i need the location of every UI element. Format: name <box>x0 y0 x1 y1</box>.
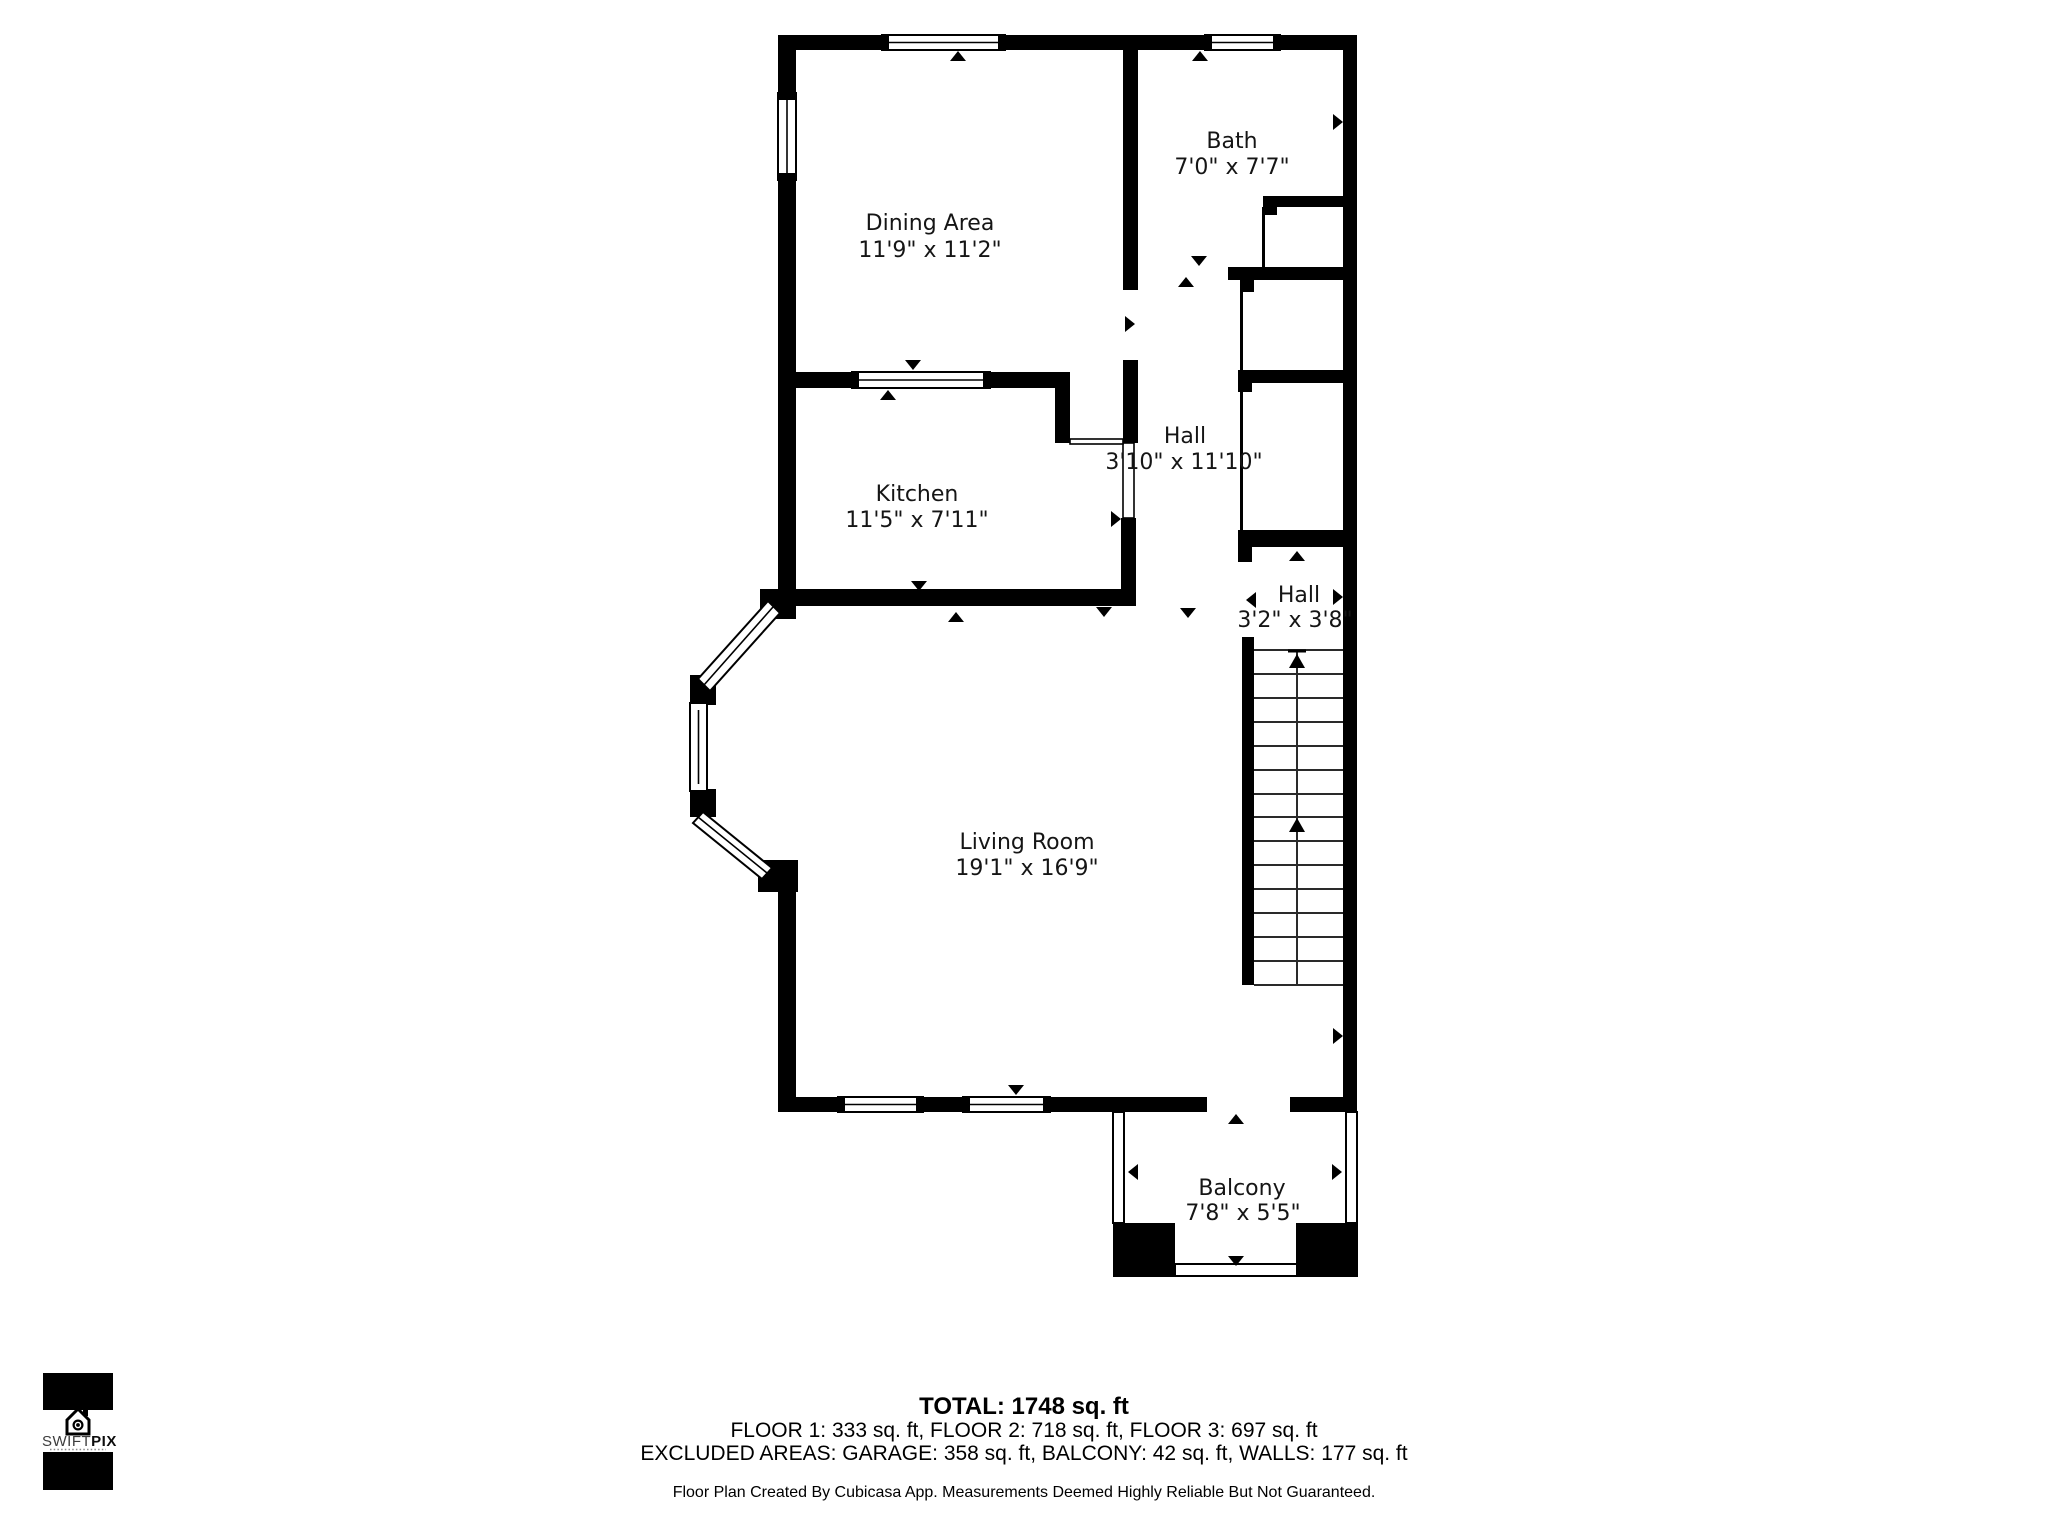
balcony-post-left <box>1113 1223 1175 1277</box>
room-label-kitchen-name: Kitchen <box>876 482 959 507</box>
pantry-front <box>1070 439 1123 444</box>
closet-front-2 <box>1240 280 1243 370</box>
arrow-right-icon <box>1333 1028 1343 1044</box>
area-summary: TOTAL: 1748 sq. ft FLOOR 1: 333 sq. ft, … <box>640 1393 1407 1501</box>
room-label-hall1-dims: 3'10" x 11'10" <box>1105 450 1262 475</box>
arrow-right-icon <box>1125 316 1135 332</box>
window-living-bottom-1 <box>838 1097 923 1112</box>
arrow-up-icon <box>950 51 966 61</box>
floor-plan-canvas: Dining Area 11'9" x 11'2" Bath 7'0" x 7'… <box>0 0 2048 1536</box>
arrow-left-icon <box>1246 592 1256 608</box>
room-label-dining-dims: 11'9" x 11'2" <box>858 238 1001 263</box>
stair-up-arrow-2 <box>1289 818 1305 832</box>
room-label-bath-name: Bath <box>1206 129 1257 154</box>
wall-right <box>1343 35 1357 1112</box>
summary-disclaimer: Floor Plan Created By Cubicasa App. Meas… <box>673 1484 1376 1501</box>
arrow-up-icon <box>1178 277 1194 287</box>
wall-stub-1 <box>1263 196 1277 215</box>
wall-central-mid <box>1123 360 1138 443</box>
room-label-balcony-name: Balcony <box>1198 1176 1285 1201</box>
window-living-bottom-2 <box>963 1097 1050 1112</box>
bay-window-lower-diagonal <box>693 812 772 879</box>
logo-block-bottom <box>43 1452 113 1490</box>
arrow-down-icon <box>1096 607 1112 617</box>
wall-pantry-left <box>1055 385 1070 443</box>
stairs-left-wall <box>1242 637 1254 985</box>
arrow-right-icon <box>1332 1164 1342 1180</box>
room-label-dining-name: Dining Area <box>866 211 995 236</box>
wall-central-upper <box>1123 35 1138 290</box>
wall-bottom-3 <box>1050 1097 1207 1112</box>
logo-block-top <box>43 1373 113 1410</box>
logo-house-camera-icon <box>67 1409 89 1434</box>
arrow-down-icon <box>905 360 921 370</box>
window-dining-top <box>882 35 1005 50</box>
arrow-right-icon <box>1333 114 1343 130</box>
arrow-down-icon <box>1191 256 1207 266</box>
arrow-right-icon <box>1333 589 1343 605</box>
arrow-down-icon <box>1008 1085 1024 1095</box>
arrow-up-icon <box>1289 551 1305 561</box>
wall-kitchen-left <box>778 385 796 604</box>
room-label-living-dims: 19'1" x 16'9" <box>955 856 1098 881</box>
window-bath-top <box>1205 35 1280 50</box>
wall-closet-2 <box>1228 267 1343 280</box>
room-label-hall2-dims: 3'2" x 3'8" <box>1237 608 1352 633</box>
closet-front-1 <box>1262 207 1265 268</box>
arrow-left-icon <box>1128 1164 1138 1180</box>
wall-stub-4 <box>1238 530 1252 562</box>
wall-bottom-2 <box>923 1097 963 1112</box>
arrow-down-icon <box>1180 608 1196 618</box>
arrow-right-icon <box>1111 511 1121 527</box>
logo-text-pix: PIX <box>91 1433 117 1450</box>
wall-closet-3 <box>1238 370 1343 383</box>
balcony-rail-left <box>1113 1112 1124 1223</box>
summary-total: TOTAL: 1748 sq. ft <box>919 1393 1129 1420</box>
room-label-kitchen-dims: 11'5" x 7'11" <box>845 508 988 533</box>
logo-text-swift: SWIFT <box>42 1433 91 1450</box>
arrow-up-icon <box>880 390 896 400</box>
room-label-living-name: Living Room <box>959 830 1094 855</box>
arrow-up-icon <box>948 612 964 622</box>
staircase <box>1242 637 1343 985</box>
balcony-post-right <box>1296 1223 1358 1277</box>
logo-wordmark: SWIFTPIX <box>42 1433 117 1450</box>
wall-bottom-1 <box>778 1097 838 1112</box>
room-label-balcony-dims: 7'8" x 5'5" <box>1185 1201 1300 1226</box>
bay-window-vertical <box>690 703 707 791</box>
room-label-bath-dims: 7'0" x 7'7" <box>1174 155 1289 180</box>
room-label-hall1-name: Hall <box>1164 424 1206 449</box>
summary-floors: FLOOR 1: 333 sq. ft, FLOOR 2: 718 sq. ft… <box>730 1419 1317 1442</box>
wall-hall2-top <box>1238 530 1343 547</box>
balcony-rail-bottom <box>1175 1264 1298 1276</box>
window-dining-left <box>778 93 796 180</box>
arrow-up-icon <box>1192 51 1208 61</box>
room-label-hall2-name: Hall <box>1278 583 1320 608</box>
wall-kitchen-bottom <box>778 589 1136 606</box>
stair-up-arrow-1 <box>1289 654 1305 668</box>
bay-window-upper-diagonal <box>698 601 780 691</box>
summary-excluded: EXCLUDED AREAS: GARAGE: 358 sq. ft, BALC… <box>640 1442 1407 1465</box>
room-labels: Dining Area 11'9" x 11'2" Bath 7'0" x 7'… <box>845 129 1352 1226</box>
window-kitchen-top <box>852 372 990 388</box>
doors <box>1070 207 1265 530</box>
balcony-rail-right <box>1346 1112 1357 1223</box>
stair-treads <box>1254 650 1343 985</box>
door-direction-arrows <box>779 51 1343 1266</box>
wall-living-left <box>778 888 796 1112</box>
walls <box>690 35 1357 1112</box>
swiftpix-logo: SWIFTPIX <box>42 1373 117 1490</box>
arrow-up-icon <box>1228 1114 1244 1124</box>
wall-left-dining <box>778 35 796 388</box>
